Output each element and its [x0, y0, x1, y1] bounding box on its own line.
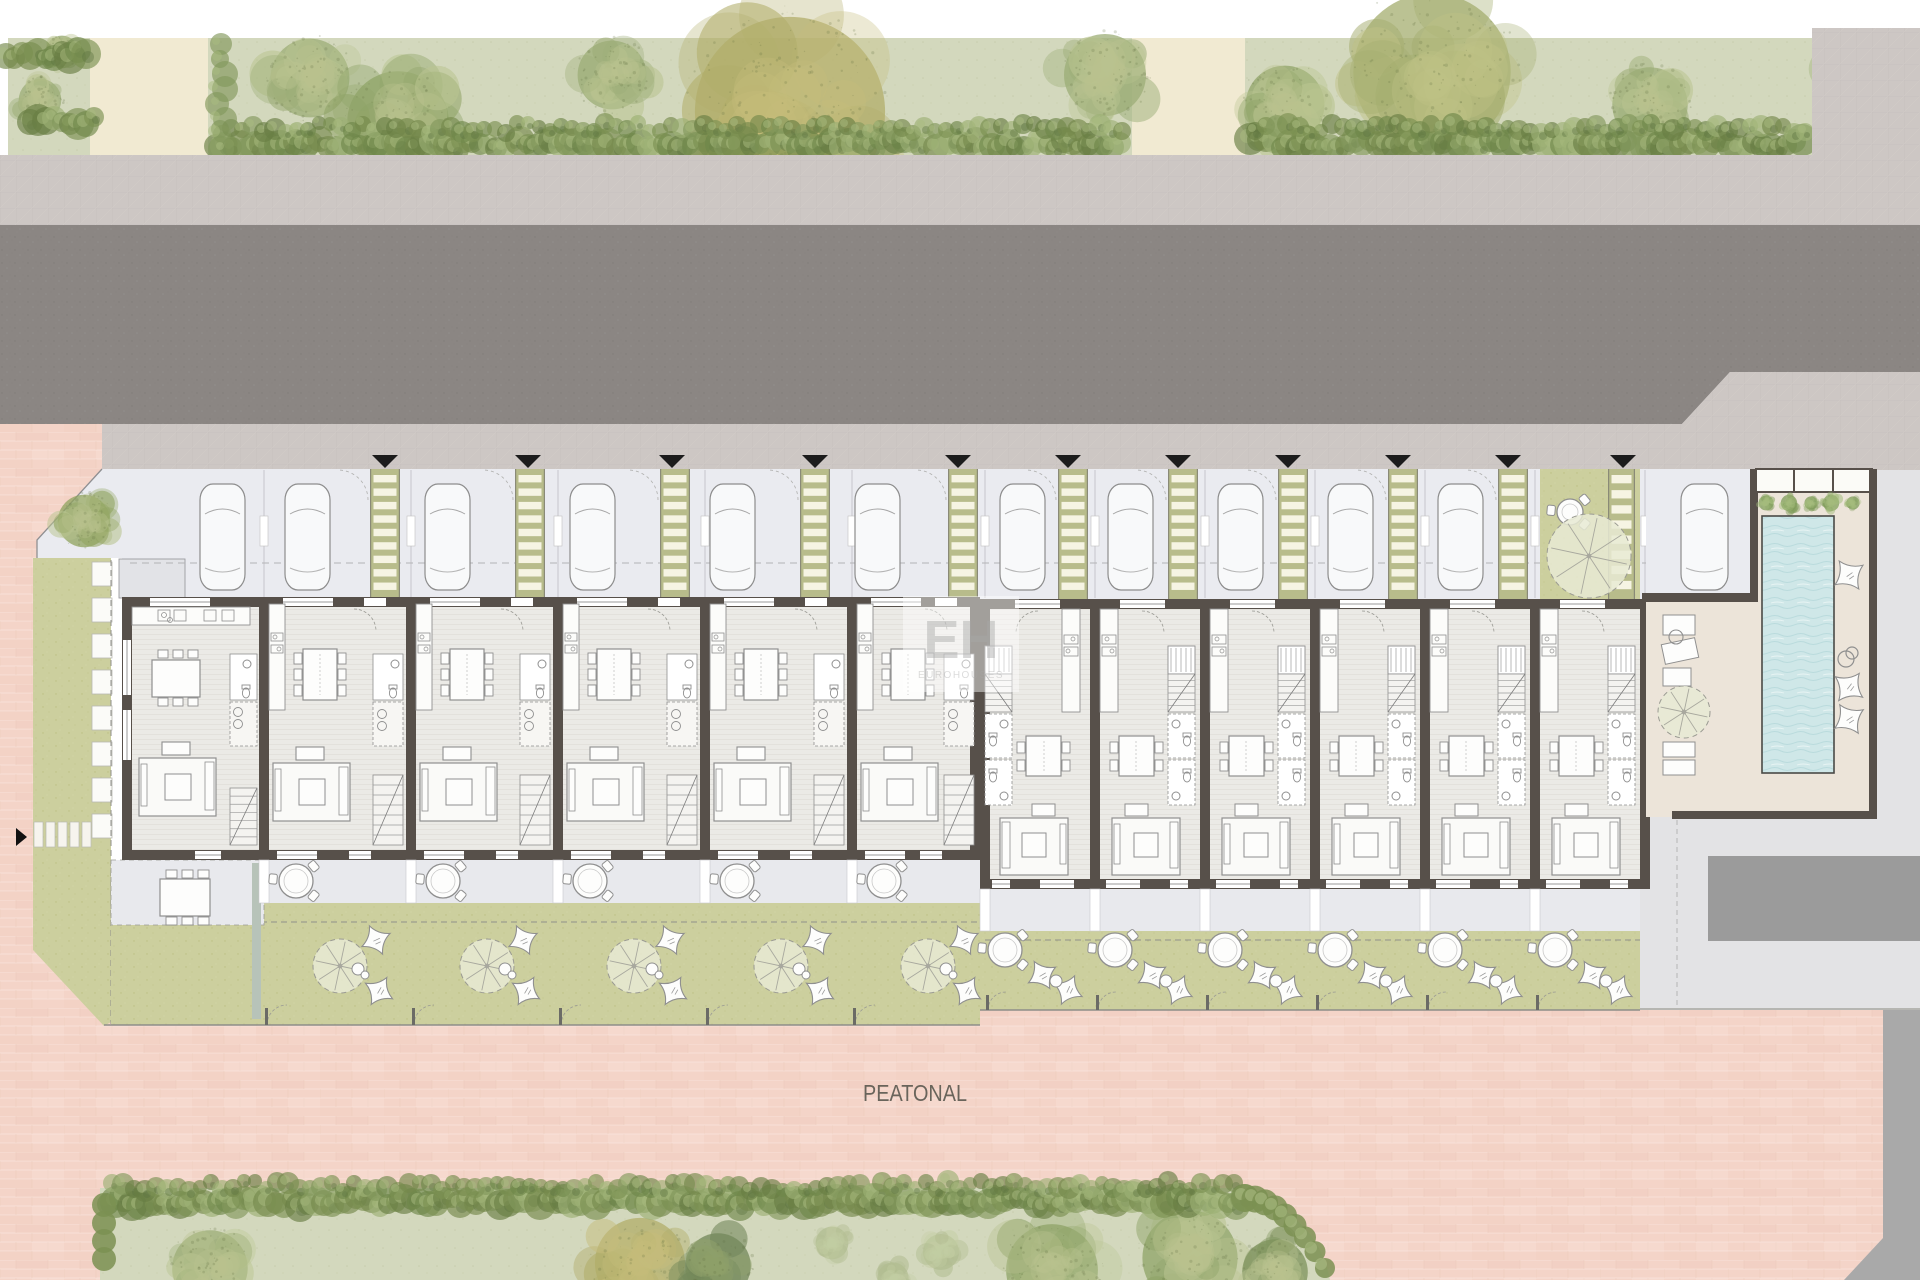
- svg-text:EH: EH: [923, 610, 998, 670]
- svg-text:PEATONAL: PEATONAL: [863, 1080, 967, 1106]
- svg-text:EUROHOUSES: EUROHOUSES: [918, 670, 1004, 681]
